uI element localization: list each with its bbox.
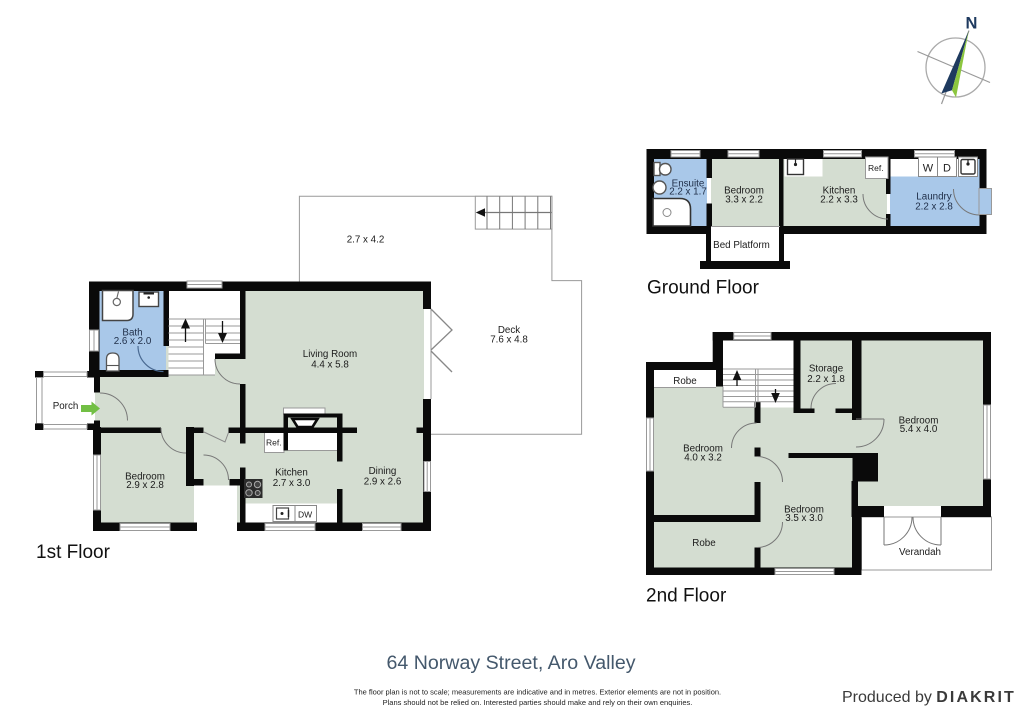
svg-text:2.2 x 3.3: 2.2 x 3.3 [820, 195, 858, 206]
svg-text:D: D [943, 163, 951, 175]
svg-text:Living Room: Living Room [303, 349, 357, 360]
svg-text:2.7 x 3.0: 2.7 x 3.0 [273, 478, 311, 489]
svg-text:2.6 x 2.0: 2.6 x 2.0 [114, 336, 152, 347]
svg-text:Robe: Robe [673, 376, 697, 387]
svg-text:Kitchen: Kitchen [275, 468, 308, 479]
svg-text:2.2 x 1.7: 2.2 x 1.7 [669, 187, 707, 198]
svg-text:2.2 x 2.8: 2.2 x 2.8 [915, 202, 953, 213]
svg-text:Ref.: Ref. [266, 438, 282, 448]
svg-text:1st Floor: 1st Floor [36, 542, 111, 563]
svg-text:Ground Floor: Ground Floor [647, 278, 760, 299]
svg-text:2.7 x 4.2: 2.7 x 4.2 [347, 235, 385, 246]
svg-text:3.5 x 3.0: 3.5 x 3.0 [785, 513, 823, 524]
svg-text:2.2 x 1.8: 2.2 x 1.8 [807, 374, 845, 385]
svg-text:2nd Floor: 2nd Floor [646, 586, 727, 607]
svg-text:7.6 x 4.8: 7.6 x 4.8 [490, 335, 528, 346]
svg-text:The floor plan is not to scale: The floor plan is not to scale; measurem… [354, 688, 721, 697]
svg-text:Ref.: Ref. [868, 163, 884, 173]
svg-text:4.0 x 3.2: 4.0 x 3.2 [684, 453, 722, 464]
svg-text:Porch: Porch [53, 401, 79, 412]
svg-text:64 Norway Street, Aro Valley: 64 Norway Street, Aro Valley [386, 652, 635, 674]
svg-text:2.9 x 2.6: 2.9 x 2.6 [364, 477, 402, 488]
svg-text:3.3 x 2.2: 3.3 x 2.2 [725, 195, 763, 206]
svg-text:4.4 x 5.8: 4.4 x 5.8 [311, 360, 349, 371]
svg-text:DW: DW [298, 510, 312, 520]
svg-text:N: N [966, 15, 978, 33]
svg-text:Plans should not be relied on.: Plans should not be relied on. Intereste… [383, 698, 693, 707]
svg-text:2.9 x 2.8: 2.9 x 2.8 [126, 480, 164, 491]
svg-text:5.4 x 4.0: 5.4 x 4.0 [900, 424, 938, 435]
svg-text:Storage: Storage [809, 364, 844, 375]
svg-text:Verandah: Verandah [899, 547, 941, 558]
svg-text:Robe: Robe [692, 538, 716, 549]
svg-text:W: W [923, 163, 934, 175]
svg-text:Dining: Dining [369, 466, 397, 477]
svg-text:Bed Platform: Bed Platform [713, 240, 770, 251]
svg-text:Produced by DIAKRIT: Produced by DIAKRIT [842, 689, 1016, 706]
